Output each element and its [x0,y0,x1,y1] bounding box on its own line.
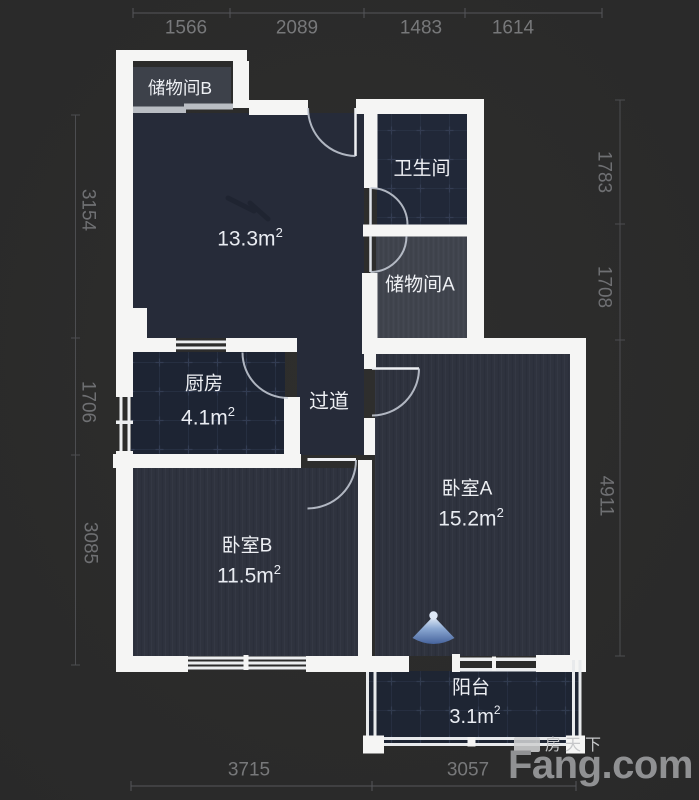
svg-text:11.5m2: 11.5m2 [217,562,281,588]
svg-text:卧室A: 卧室A [442,478,493,500]
svg-text:阳台: 阳台 [452,677,490,699]
svg-text:13.3m2: 13.3m2 [217,225,283,251]
svg-text:1706: 1706 [78,381,99,423]
svg-text:1483: 1483 [400,18,442,39]
svg-text:3057: 3057 [447,760,489,781]
svg-text:4.1m2: 4.1m2 [181,404,235,430]
svg-text:过道: 过道 [309,390,349,413]
svg-text:3085: 3085 [80,522,101,564]
svg-text:储物间A: 储物间A [385,274,455,296]
svg-text:卫生间: 卫生间 [393,158,450,180]
svg-text:卧室B: 卧室B [222,535,273,557]
svg-text:厨房: 厨房 [185,373,223,395]
svg-text:3154: 3154 [78,189,99,232]
svg-text:3.1m2: 3.1m2 [449,703,500,728]
svg-text:1783: 1783 [594,151,615,193]
svg-text:储物间B: 储物间B [148,78,212,98]
svg-text:1566: 1566 [165,18,207,39]
svg-text:1708: 1708 [594,266,615,308]
svg-text:2089: 2089 [276,18,318,39]
svg-text:Fang.com: Fang.com [508,743,693,787]
svg-text:1614: 1614 [492,18,535,39]
svg-text:15.2m2: 15.2m2 [438,505,504,531]
svg-text:3715: 3715 [228,760,270,781]
svg-text:4911: 4911 [596,476,617,517]
